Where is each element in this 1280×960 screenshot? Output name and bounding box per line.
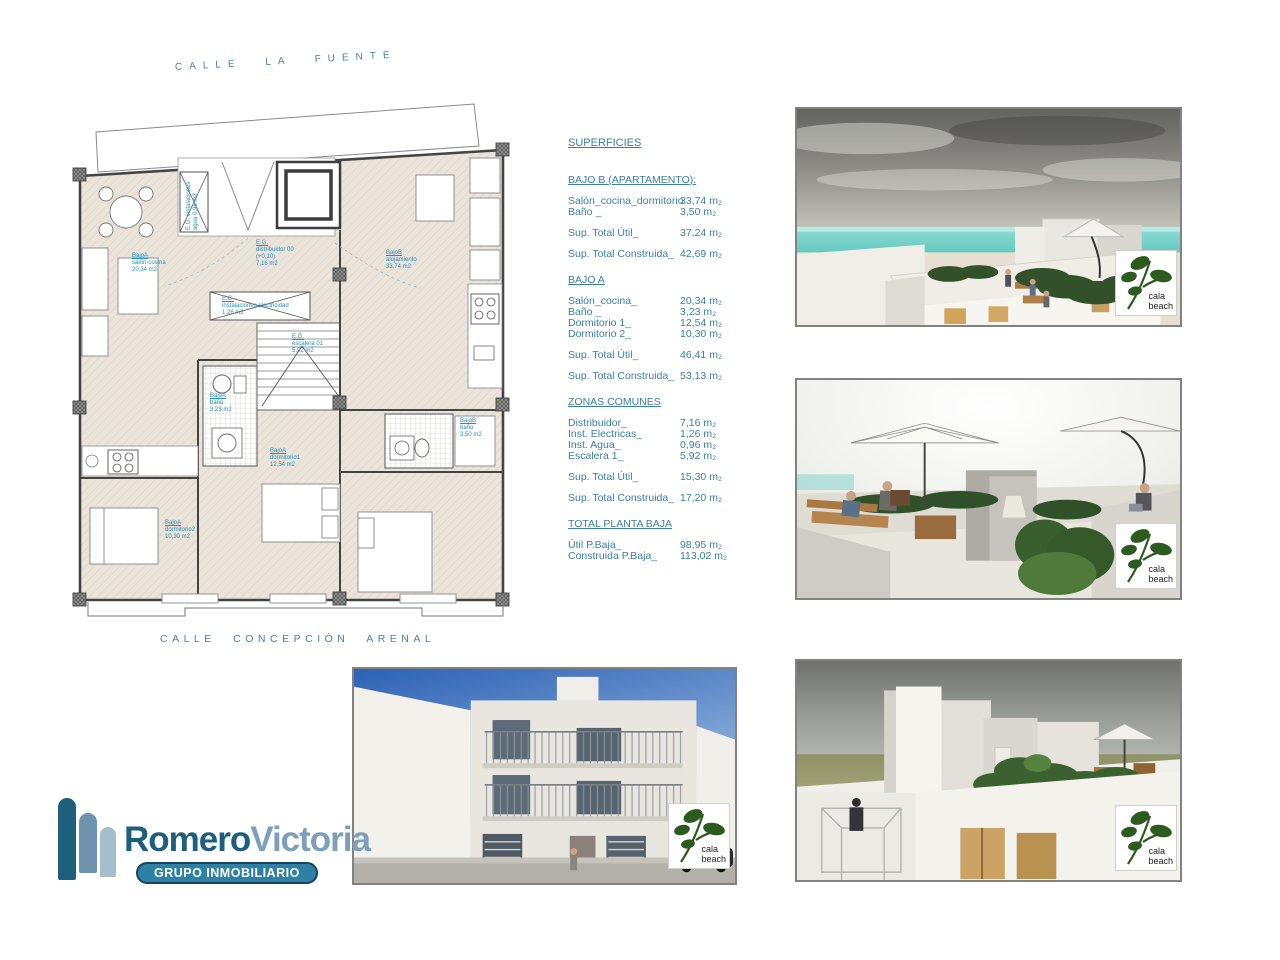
- brand-tagline: GRUPO INMOBILIARIO: [136, 862, 318, 884]
- render-rooftop-sea: calabeach: [795, 107, 1182, 327]
- logo-bars-icon: [58, 798, 120, 880]
- plan-label-bajob-alojamiento: BajoBalojamiento33,74 m2: [386, 250, 417, 271]
- kitchen-bajob: [468, 284, 502, 388]
- pedestrian: [570, 848, 577, 870]
- plan-label-distribuidor: E.G.distribuidor 00(+0,10)7,16 m2: [256, 240, 294, 268]
- plan-label-dormitorio1: BajoAdormitorio112,54 m2: [270, 448, 300, 469]
- section-total-planta-baja: TOTAL PLANTA BAJA Útil P.Baja_98,95 m₂ C…: [568, 519, 754, 562]
- render-rooftop-rear: calabeach: [795, 659, 1182, 882]
- section-zonas-comunes: ZONAS COMUNES Distribuidor_7,16 m₂ Inst.…: [568, 397, 754, 504]
- cala-beach-watermark: calabeach: [1116, 524, 1176, 588]
- cala-beach-watermark: calabeach: [669, 804, 729, 868]
- romero-victoria-logo: RomeroVictoria GRUPO INMOBILIARIO: [58, 798, 338, 884]
- kitchen-bajoa: [82, 446, 198, 476]
- plan-label-escalera: E.G.escalera 015,92 m2: [292, 334, 323, 355]
- render-street-facade: calabeach: [352, 667, 737, 885]
- section-bajo-a: BAJO A Salón_cocina_20,34 m₂ Baño _3,23 …: [568, 275, 754, 382]
- superficies-title: SUPERFICIES: [568, 138, 754, 149]
- bathroom-bajoa: [203, 366, 257, 466]
- plan-label-dormitorio2: BajoAdormitorio210,30 m2: [165, 520, 195, 541]
- elevator-shaft: [277, 162, 340, 228]
- plan-label-agua: E.G. instalacionesagua 0,96 m2: [186, 166, 200, 230]
- brand-name: RomeroVictoria: [124, 820, 370, 860]
- plan-label-electricidad: E.G.instalaciones electricidad1,26 m2: [222, 296, 312, 317]
- brochure-page: CALLE LA FUENTE CALLE CONCEPCIÓN ARENAL: [0, 0, 1280, 960]
- render-terrace-people: calabeach: [795, 378, 1182, 600]
- floor-plan: BajoAsalón-cocina20,34 m2 E.G.distribuid…: [70, 98, 515, 638]
- plan-label-bano-b: BajoBbaño3,50 m2: [460, 418, 482, 439]
- superficies-panel: SUPERFICIES BAJO B (APARTAMENTO): Salón_…: [568, 138, 754, 574]
- section-bajo-b: BAJO B (APARTAMENTO): Salón_cocina_dormi…: [568, 175, 754, 260]
- cala-beach-watermark: calabeach: [1116, 251, 1176, 315]
- sidewalk-bracket: [88, 602, 503, 616]
- plan-label-bano-a: BajoAbaño3,23 m2: [210, 393, 232, 414]
- plan-label-bajoa-salon: BajoAsalón-cocina20,34 m2: [132, 253, 166, 274]
- cala-beach-watermark: calabeach: [1116, 806, 1176, 870]
- street-label-top: CALLE LA FUENTE: [175, 50, 397, 73]
- floor-plan-drawing: [70, 98, 515, 638]
